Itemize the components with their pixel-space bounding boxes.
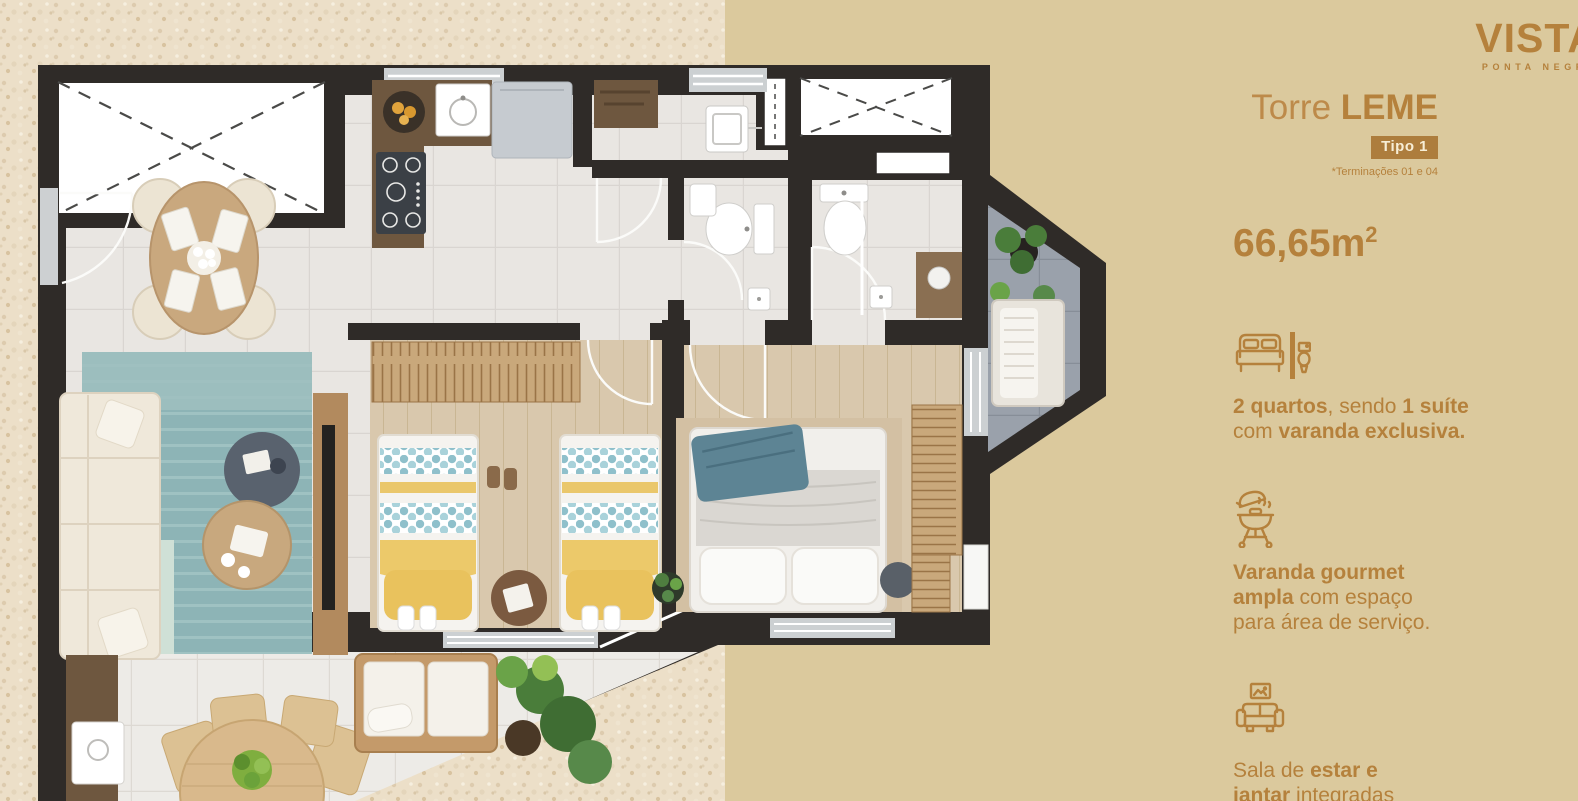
vista-logo: VISTA PONTA NEGRA — [1475, 18, 1578, 72]
feature-text: 2 quartos, sendo 1 suítecom varanda excl… — [1233, 394, 1469, 444]
type-badge: Tipo 1 — [1371, 136, 1438, 159]
marketing-slide: VISTA PONTA NEGRA Torre LEME Tipo 1 *Ter… — [0, 0, 1578, 801]
fridge — [492, 82, 572, 158]
logo-wordmark: VISTA — [1475, 18, 1578, 59]
barbecue-grill-icon — [1233, 492, 1430, 548]
feature-gourmet-balcony: Varanda gourmetampla com espaçopara área… — [1233, 492, 1430, 635]
twin-bed — [378, 435, 478, 631]
bed-and-toilet-icon — [1233, 326, 1469, 382]
wardrobe-bedroom1 — [372, 342, 580, 402]
pillow — [792, 548, 878, 604]
feature-living-dining: Sala de estar ejantar integradas — [1233, 682, 1394, 801]
tv — [322, 425, 335, 610]
toilet-1-tank — [754, 204, 774, 254]
bath1-sink — [690, 184, 716, 216]
entrance-opening — [40, 188, 58, 285]
suite-wardrobe — [912, 405, 962, 555]
plan-header: Torre LEME Tipo 1 *Terminações 01 e 04 — [1251, 90, 1438, 178]
window-service — [689, 68, 767, 92]
twin-bed — [560, 435, 660, 631]
balcony-door-suite — [964, 348, 988, 436]
kitchen-sink — [436, 84, 490, 136]
living-room — [60, 352, 348, 659]
toilet-2-bowl — [824, 201, 866, 255]
sofa-icon — [1233, 682, 1394, 738]
pouf — [880, 562, 916, 598]
suite-bedroom — [652, 405, 962, 612]
window-suite — [770, 618, 895, 638]
feature-text: Sala de estar ejantar integradas — [1233, 758, 1394, 801]
window-suite-balcony — [964, 545, 988, 609]
dining-set — [133, 179, 275, 339]
superscript-2: 2 — [1365, 222, 1377, 247]
unit-area: 66,65m2 — [1233, 222, 1378, 266]
page-title: Torre LEME — [1251, 90, 1438, 127]
logo-tagline: PONTA NEGRA — [1475, 62, 1578, 72]
feature-text: Varanda gourmetampla com espaçopara área… — [1233, 560, 1430, 635]
window-bedroom1 — [443, 632, 598, 648]
sandals — [487, 466, 500, 488]
pillow — [700, 548, 786, 604]
balcony-sink — [72, 722, 124, 784]
sandals — [504, 468, 517, 490]
suite-wardrobe — [912, 555, 950, 612]
feature-bedrooms: 2 quartos, sendo 1 suítecom varanda excl… — [1233, 326, 1469, 444]
teal-throw — [690, 423, 809, 502]
terminations-footnote: *Terminações 01 e 04 — [1251, 166, 1438, 178]
outdoor-sofa — [355, 654, 497, 752]
